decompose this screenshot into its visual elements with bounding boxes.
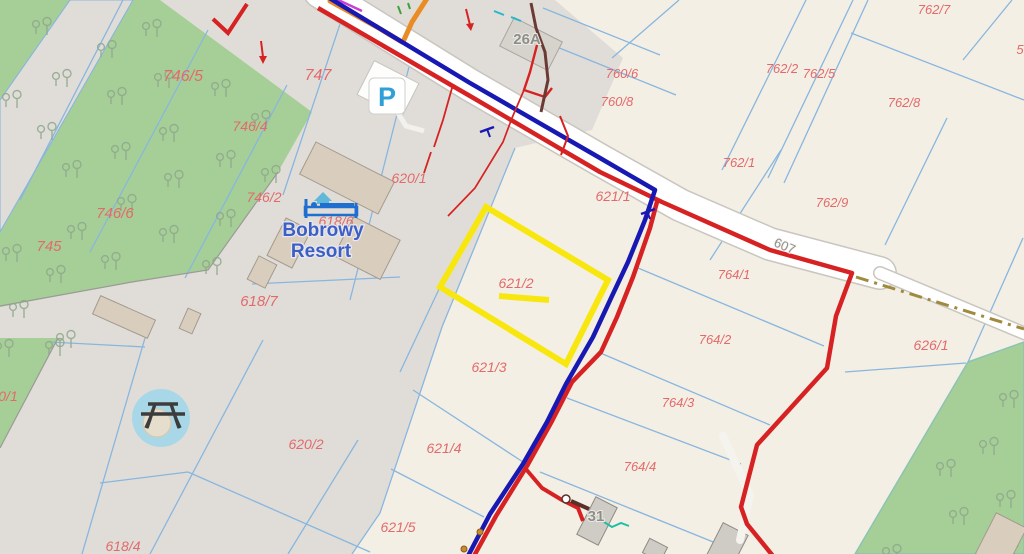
picnic-table-icon[interactable]	[132, 389, 190, 447]
parcel-label-764/2: 764/2	[699, 332, 732, 347]
parcel-label-5: 5	[1016, 42, 1024, 57]
parking-letter: P	[378, 82, 396, 112]
parcel-label-31: 31	[588, 508, 605, 525]
parcel-label-762/9: 762/9	[816, 195, 849, 210]
parcel-label-746/6: 746/6	[96, 205, 134, 222]
parcel-label-618/4: 618/4	[105, 538, 140, 554]
parcel-label-746/5: 746/5	[163, 68, 203, 85]
parcel-label-760/8: 760/8	[601, 94, 634, 109]
resort-name-line1: Bobrowy	[282, 220, 364, 241]
parcel-label-621/2: 621/2	[498, 275, 533, 291]
parcel-label-762/5: 762/5	[803, 66, 836, 81]
resort-name-line2: Resort	[291, 241, 352, 262]
map-canvas[interactable]: 746/5747746/4746/2746/6745618/6618/7620/…	[0, 0, 1024, 554]
parcel-label-746/2: 746/2	[246, 189, 281, 205]
selected-parcel-underline	[499, 296, 549, 300]
parcel-label-620/1: 620/1	[391, 170, 426, 186]
parking-icon[interactable]: P	[369, 78, 405, 114]
parcel-label-762/1: 762/1	[723, 155, 756, 170]
parcel-label-746/4: 746/4	[232, 118, 267, 134]
parcel-label-747: 747	[305, 67, 333, 84]
parcel-label-621/4: 621/4	[426, 440, 461, 456]
parcel-label-760/6: 760/6	[606, 66, 639, 81]
parcel-label-762/8: 762/8	[888, 95, 921, 110]
parcel-label-0/1: 0/1	[0, 388, 18, 404]
parcel-label-618/7: 618/7	[240, 293, 278, 310]
parcel-label-620/2: 620/2	[288, 436, 323, 452]
cadastral-map[interactable]: 746/5747746/4746/2746/6745618/6618/7620/…	[0, 0, 1024, 554]
parcel-label-745: 745	[36, 238, 62, 255]
parcel-label-762/7: 762/7	[918, 2, 951, 17]
parcel-label-621/1: 621/1	[595, 188, 630, 204]
parcel-label-26A: 26A	[513, 31, 541, 48]
parcel-label-764/3: 764/3	[662, 395, 695, 410]
parcel-label-762/2: 762/2	[766, 61, 799, 76]
parcel-label-621/3: 621/3	[471, 359, 506, 375]
parcel-label-764/4: 764/4	[624, 459, 657, 474]
parcel-label-626/1: 626/1	[913, 337, 948, 353]
parcel-label-764/1: 764/1	[718, 267, 751, 282]
parcel-label-621/5: 621/5	[380, 519, 415, 535]
